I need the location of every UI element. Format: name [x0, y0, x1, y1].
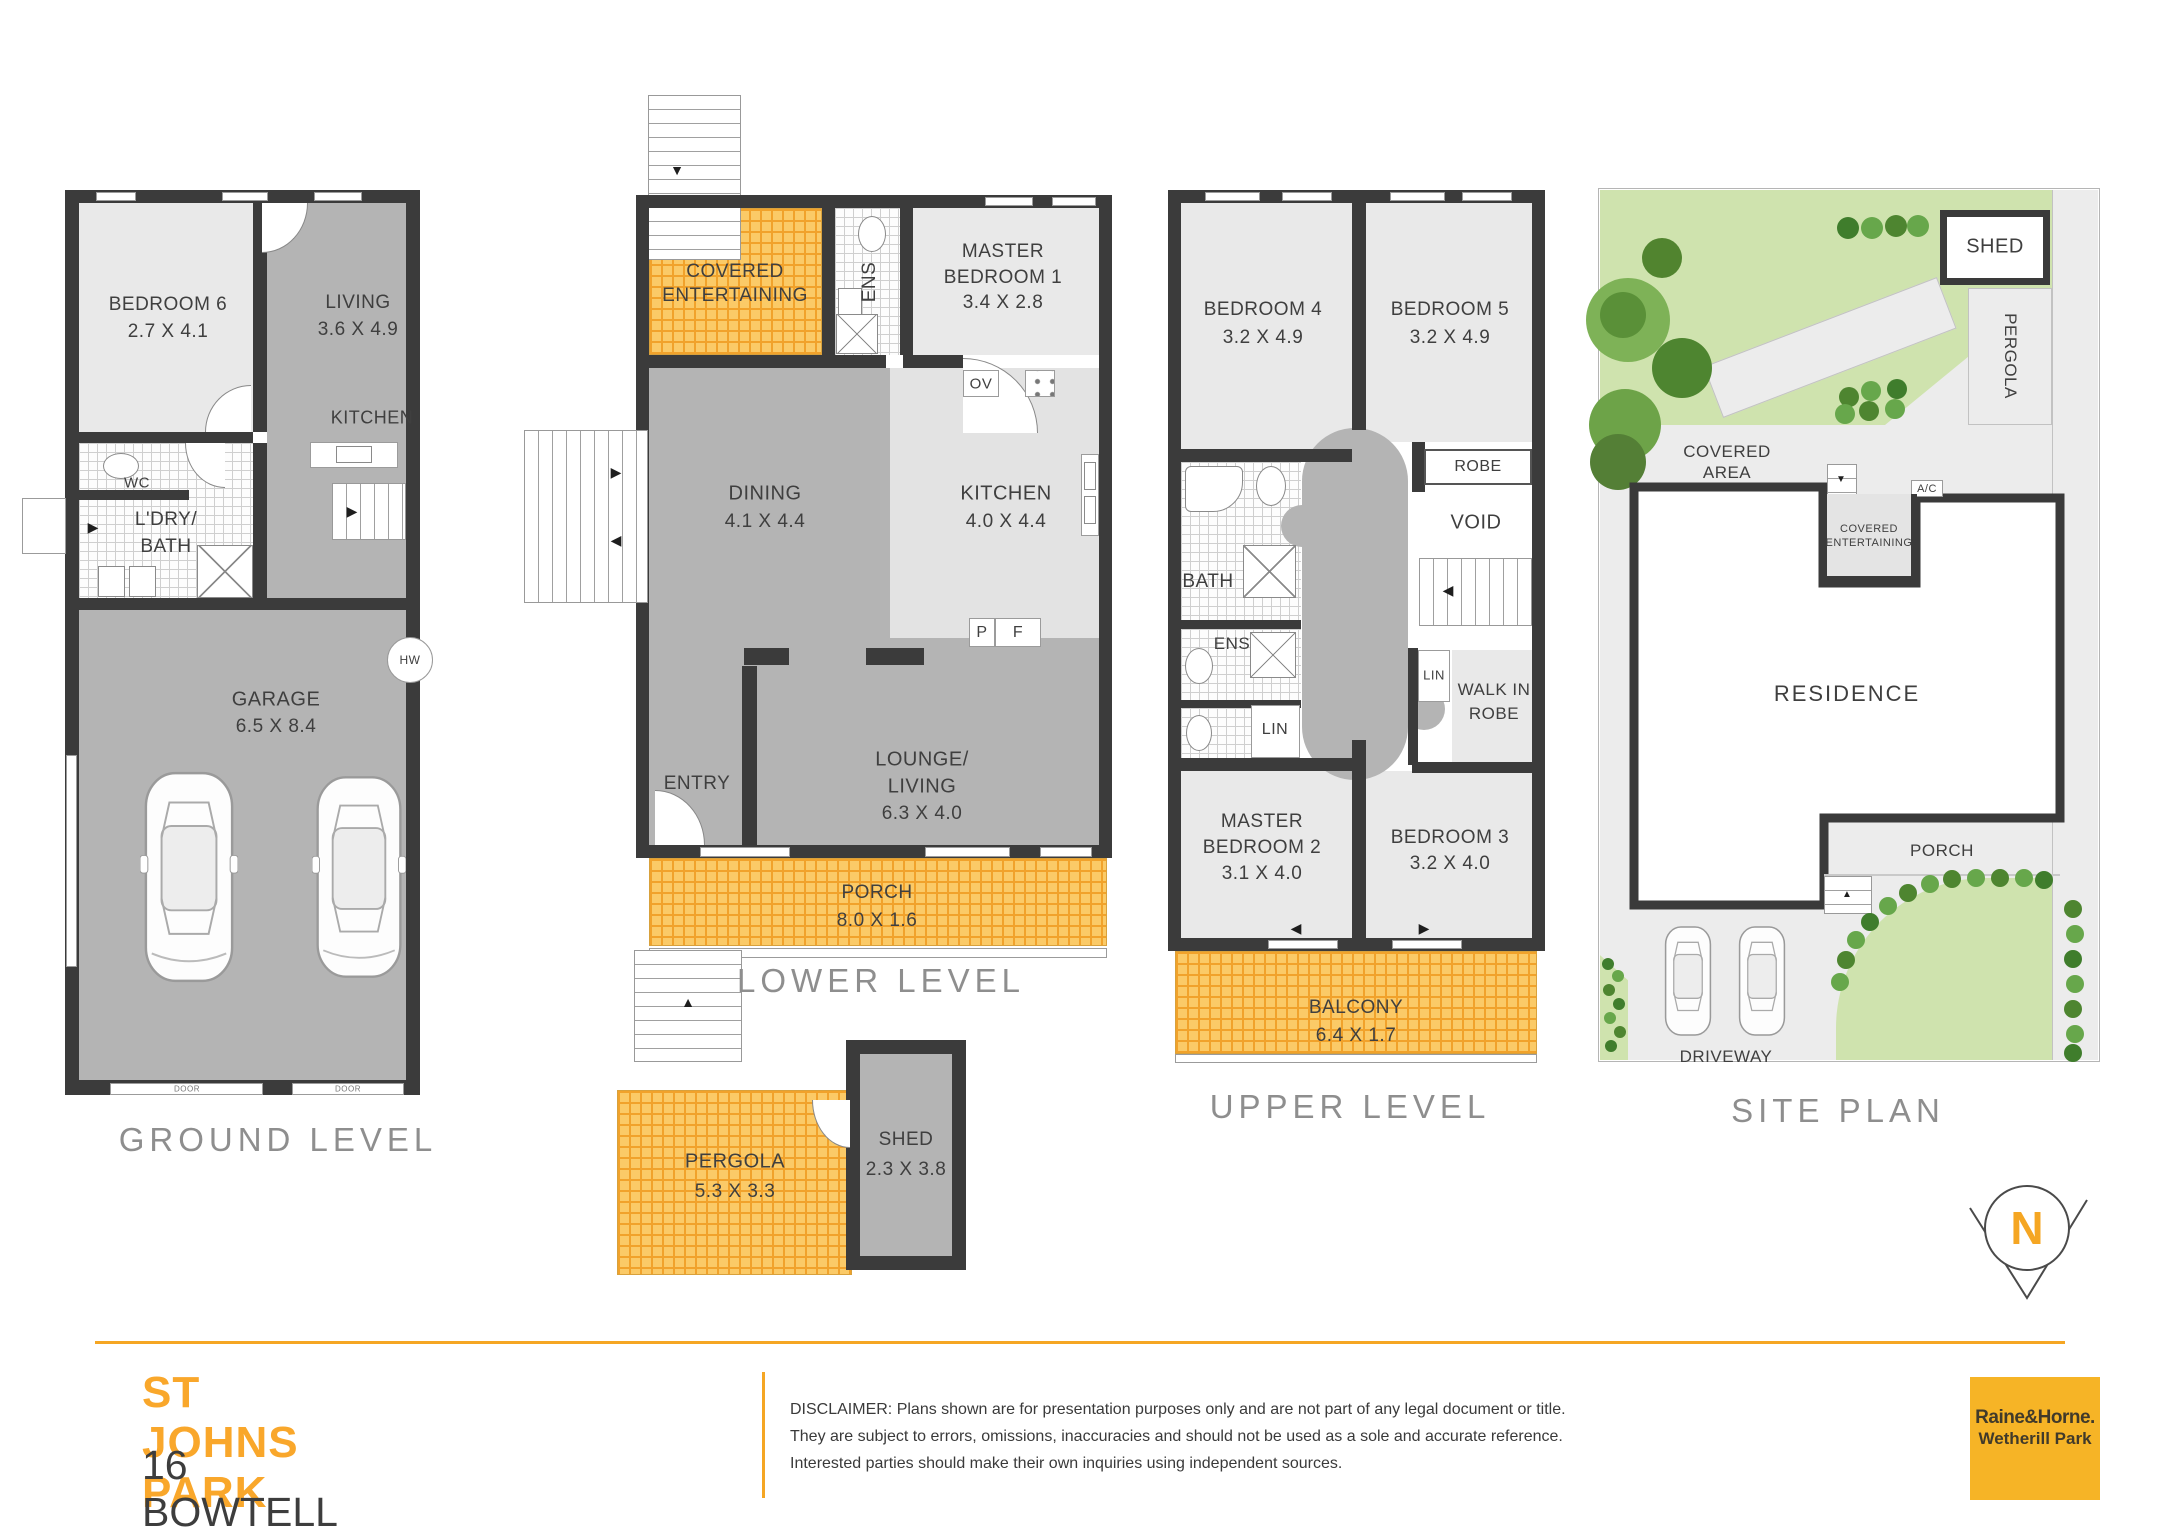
wall: [1181, 758, 1352, 771]
label-master1-b: BEDROOM 1: [944, 267, 1063, 289]
label-bedroom3: BEDROOM 3: [1391, 827, 1510, 849]
footer-divider: [762, 1372, 765, 1498]
shrub-icon: [1847, 931, 1865, 949]
room-shed: [860, 1054, 952, 1256]
basin-icon: [1186, 715, 1212, 751]
label-driveway: DRIVEWAY: [1680, 1047, 1773, 1067]
label-ens-lower: ENS: [859, 262, 881, 303]
hallway: [1281, 505, 1323, 547]
label-lin2: LIN: [1423, 668, 1445, 683]
label-oven: OV: [970, 376, 993, 393]
wall: [1412, 762, 1532, 773]
label-bath: BATH: [140, 536, 191, 558]
arrow-left-icon: ◀: [1443, 583, 1454, 597]
laundry-tub-icon: [98, 566, 125, 597]
wall: [1181, 620, 1301, 629]
label-ldry: L'DRY/: [135, 509, 197, 531]
window: [985, 197, 1033, 206]
label-lounge2: LIVING: [888, 776, 957, 799]
arrow-left-icon: ◀: [1291, 921, 1302, 935]
arrow-down-icon: ▼: [670, 163, 684, 177]
toilet-icon: [1256, 466, 1286, 506]
shrub-icon: [2064, 900, 2082, 918]
side-entry-step: [22, 498, 66, 554]
arrow-right-icon: ▶: [88, 520, 99, 534]
label-covered-area2: AREA: [1703, 463, 1751, 483]
label-door: DOOR: [335, 1085, 361, 1094]
shrub-icon: [1613, 998, 1625, 1010]
arrow-up-icon: ▲: [681, 995, 695, 1009]
shower-icon: [197, 545, 253, 598]
wall: [1352, 740, 1366, 951]
wall: [744, 648, 789, 665]
label-shed: SHED: [879, 1129, 934, 1151]
shrub-icon: [1612, 970, 1624, 982]
arrow-right-icon: ▶: [347, 504, 358, 518]
balcony-edge: [1175, 1054, 1537, 1063]
logo-brand: Raine&Horne.: [1970, 1407, 2100, 1429]
hallway: [1302, 428, 1408, 780]
kitchen-sink-icon: [1084, 496, 1096, 524]
floorplan-canvas: ▶ ▶ HW DOOR DOOR: [0, 0, 2160, 1527]
wall: [1352, 190, 1366, 430]
window: [1205, 192, 1260, 201]
wall: [1168, 190, 1181, 951]
label-bedroom4-dims: 3.2 X 4.9: [1223, 327, 1304, 349]
shrub-icon: [1831, 973, 1849, 991]
wall: [253, 443, 267, 610]
shrub-icon: [1861, 913, 1879, 931]
stairs-icon: [332, 483, 406, 540]
label-porch-site: PORCH: [1910, 841, 1974, 861]
shrub-icon: [1837, 951, 1855, 969]
label-entry: ENTRY: [664, 773, 731, 795]
shower-icon: [1243, 545, 1296, 598]
shrub-icon: [2064, 1044, 2082, 1062]
shrub-icon: [2064, 950, 2082, 968]
label-wc: WC: [124, 475, 150, 492]
kitchen-sink-icon: [1084, 462, 1096, 490]
shrub-icon: [1604, 1012, 1616, 1024]
label-bedroom3-dims: 3.2 X 4.0: [1410, 853, 1491, 875]
label-bedroom6: BEDROOM 6: [109, 294, 228, 316]
shrub-icon: [1943, 870, 1961, 888]
label-site-ce2: ENTERTAINING: [1826, 537, 1913, 549]
wall: [1408, 648, 1418, 765]
address-title: 16 BOWTELL AVENUE: [142, 1442, 336, 1527]
wall: [1099, 195, 1112, 858]
label-bath-upper: BATH: [1182, 571, 1233, 593]
label-master2-b: BEDROOM 2: [1203, 837, 1322, 859]
arrow-right-icon: ▶: [611, 465, 622, 479]
label-garage-dims: 6.5 X 8.4: [236, 716, 317, 738]
car-icon: [1662, 925, 1714, 1037]
window: [1040, 847, 1092, 857]
shrub-icon: [2066, 1025, 2084, 1043]
label-master2-a: MASTER: [1221, 811, 1303, 833]
car-icon: [1736, 925, 1788, 1037]
label-residence: RESIDENCE: [1774, 681, 1920, 707]
wall: [79, 432, 253, 443]
stairs-icon: [1419, 558, 1532, 626]
label-covered-ent2: ENTERTAINING: [662, 285, 808, 307]
label-kitchen: KITCHEN: [331, 408, 414, 429]
disclaimer-text: DISCLAIMER: Plans shown are for presenta…: [790, 1396, 1570, 1478]
cooktop-icon: [1025, 370, 1055, 397]
label-pergola-dims: 5.3 X 3.3: [695, 1181, 776, 1203]
shrub-icon: [2015, 869, 2033, 887]
label-dining: DINING: [729, 483, 802, 506]
label-lin1: LIN: [1262, 721, 1288, 739]
stairs-icon: [524, 430, 648, 603]
label-bedroom5: BEDROOM 5: [1391, 299, 1510, 321]
title-upper-level: UPPER LEVEL: [1210, 1088, 1491, 1126]
stairs-icon: [648, 95, 741, 260]
label-balcony-dims: 6.4 X 1.7: [1316, 1025, 1397, 1047]
label-north: N: [2010, 1202, 2043, 1254]
wall: [822, 208, 835, 355]
sliding-door: [1268, 940, 1338, 949]
label-lounge-dims: 6.3 X 4.0: [882, 803, 963, 825]
label-wir1: WALK IN: [1458, 680, 1531, 700]
label-porch-dims: 8.0 X 1.6: [837, 910, 918, 932]
shrub-icon: [2066, 925, 2084, 943]
wall: [900, 208, 913, 355]
shrub-icon: [1603, 984, 1615, 996]
window: [1462, 192, 1512, 201]
window: [1390, 192, 1445, 201]
wall: [866, 648, 924, 665]
wall: [65, 598, 420, 610]
footer-rule: [95, 1341, 2065, 1344]
label-door: DOOR: [174, 1085, 200, 1094]
wall: [636, 355, 886, 368]
label-shed-dims: 2.3 X 3.8: [866, 1159, 947, 1181]
shrub-icon: [1899, 884, 1917, 902]
label-kitchen-lower-dims: 4.0 X 4.4: [966, 511, 1047, 533]
car-icon: [312, 768, 406, 986]
shrub-icon: [1605, 1040, 1617, 1052]
label-ens-upper: ENS: [1214, 634, 1250, 654]
label-pantry: P: [976, 624, 987, 642]
label-bedroom5-dims: 3.2 X 4.9: [1410, 327, 1491, 349]
kitchen-sink-icon: [336, 446, 372, 463]
label-kitchen-lower: KITCHEN: [960, 483, 1051, 506]
wall: [742, 666, 757, 845]
label-wir2: ROBE: [1469, 704, 1519, 724]
label-pergola: PERGOLA: [685, 1151, 785, 1174]
north-compass-icon: N: [1945, 1148, 2110, 1313]
label-fridge: F: [1013, 624, 1023, 642]
wall: [903, 355, 963, 368]
wall: [79, 490, 189, 500]
shrub-icon: [2035, 871, 2053, 889]
label-porch: PORCH: [841, 882, 912, 904]
label-living-dims: 3.6 X 4.9: [318, 319, 399, 341]
arrow-right-icon: ▶: [1419, 921, 1430, 935]
room-bedroom5: [1366, 203, 1532, 442]
label-master1-dims: 3.4 X 2.8: [963, 292, 1044, 314]
shrub-icon: [1921, 875, 1939, 893]
label-dining-dims: 4.1 X 4.4: [725, 511, 806, 533]
shrub-icon: [1967, 869, 1985, 887]
window: [925, 847, 1010, 857]
window: [700, 847, 790, 857]
window: [1282, 192, 1332, 201]
window: [1052, 197, 1096, 206]
toilet-icon: [858, 216, 886, 252]
shower-icon: [1250, 632, 1296, 678]
wall: [1168, 938, 1545, 951]
window: [314, 192, 362, 201]
agency-logo: Raine&Horne. Wetherill Park: [1970, 1377, 2100, 1500]
wall: [636, 195, 836, 208]
label-bedroom6-dims: 2.7 X 4.1: [128, 321, 209, 343]
label-hw: HW: [400, 653, 421, 667]
window: [96, 192, 136, 201]
arrow-down-icon: ▼: [1836, 475, 1846, 485]
shrub-icon: [1614, 1026, 1626, 1038]
title-lower-level: LOWER LEVEL: [737, 962, 1025, 1000]
window: [66, 755, 77, 967]
title-site-plan: SITE PLAN: [1731, 1092, 1945, 1130]
toilet-icon: [1185, 648, 1213, 684]
label-bedroom4: BEDROOM 4: [1204, 299, 1323, 321]
logo-office: Wetherill Park: [1970, 1429, 2100, 1449]
label-covered-ent1: COVERED: [686, 261, 783, 283]
label-robe: ROBE: [1454, 458, 1501, 476]
label-balcony: BALCONY: [1309, 997, 1403, 1019]
window: [222, 192, 268, 201]
laundry-tub-icon: [129, 566, 156, 597]
shower-icon: [836, 314, 878, 354]
label-covered-area1: COVERED: [1683, 442, 1771, 462]
shrub-icon: [1879, 897, 1897, 915]
arrow-up-icon: ▲: [1842, 890, 1852, 900]
label-living: LIVING: [325, 292, 390, 314]
room-bedroom4: [1181, 203, 1352, 449]
sliding-door: [1392, 940, 1462, 949]
shrub-icon: [2064, 1000, 2082, 1018]
title-ground-level: GROUND LEVEL: [119, 1121, 438, 1159]
label-lounge1: LOUNGE/: [875, 749, 969, 772]
label-site-ce1: COVERED: [1840, 523, 1898, 535]
arrow-left-icon: ◀: [611, 533, 622, 547]
car-icon: [140, 768, 238, 986]
label-master1-a: MASTER: [962, 241, 1044, 263]
shrub-icon: [2066, 975, 2084, 993]
shrub-icon: [1991, 869, 2009, 887]
wall: [1532, 190, 1545, 951]
wall: [1181, 449, 1352, 462]
shrub-icon: [1602, 958, 1614, 970]
label-master2-dims: 3.1 X 4.0: [1222, 863, 1303, 885]
label-ac: A/C: [1917, 483, 1937, 495]
label-void: VOID: [1451, 512, 1502, 535]
label-garage: GARAGE: [232, 689, 321, 712]
